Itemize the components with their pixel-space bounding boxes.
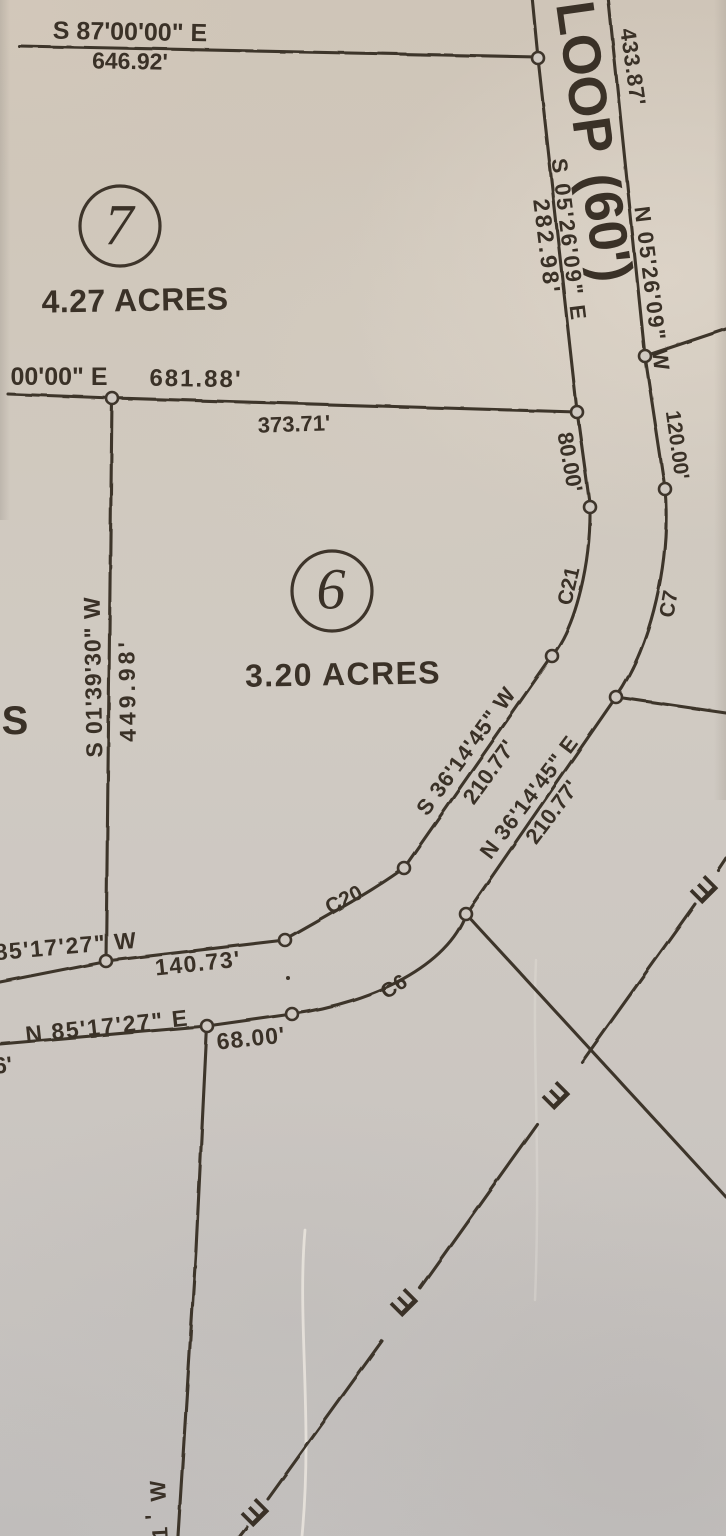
svg-text:': ' <box>140 1514 165 1521</box>
svg-text:S 01'39'30" W: S 01'39'30" W <box>79 596 108 758</box>
svg-text:140.73': 140.73' <box>154 946 243 981</box>
svg-text:E: E <box>535 1075 577 1117</box>
svg-text:6: 6 <box>317 557 346 622</box>
svg-text:N 85'17'27" E: N 85'17'27" E <box>24 1004 190 1047</box>
svg-text:433.87': 433.87' <box>615 27 651 108</box>
svg-text:00'00" E: 00'00" E <box>10 363 107 391</box>
svg-text:449.98': 449.98' <box>113 638 141 742</box>
svg-text:68.00': 68.00' <box>215 1021 286 1054</box>
svg-text:120.00': 120.00' <box>661 409 693 481</box>
svg-text:373.71': 373.71' <box>257 410 330 438</box>
svg-text:S: S <box>2 699 29 743</box>
svg-text:646.92': 646.92' <box>92 47 168 74</box>
svg-text:C6: C6 <box>376 970 411 1004</box>
svg-text:C21: C21 <box>553 564 584 607</box>
svg-text:C7: C7 <box>655 589 682 619</box>
svg-text:4.27 ACRES: 4.27 ACRES <box>41 280 229 319</box>
svg-text:LOOP: LOOP <box>544 0 625 157</box>
svg-text:3.20 ACRES: 3.20 ACRES <box>245 654 442 693</box>
svg-text:1: 1 <box>147 1526 173 1536</box>
svg-text:E: E <box>683 869 725 911</box>
svg-text:6': 6' <box>0 1051 13 1079</box>
svg-text:681.88': 681.88' <box>149 365 243 394</box>
svg-text:S 87'00'00" E: S 87'00'00" E <box>53 17 208 48</box>
svg-text:W: W <box>145 1480 171 1502</box>
svg-text:C20: C20 <box>322 881 367 919</box>
svg-text:7: 7 <box>105 193 136 258</box>
